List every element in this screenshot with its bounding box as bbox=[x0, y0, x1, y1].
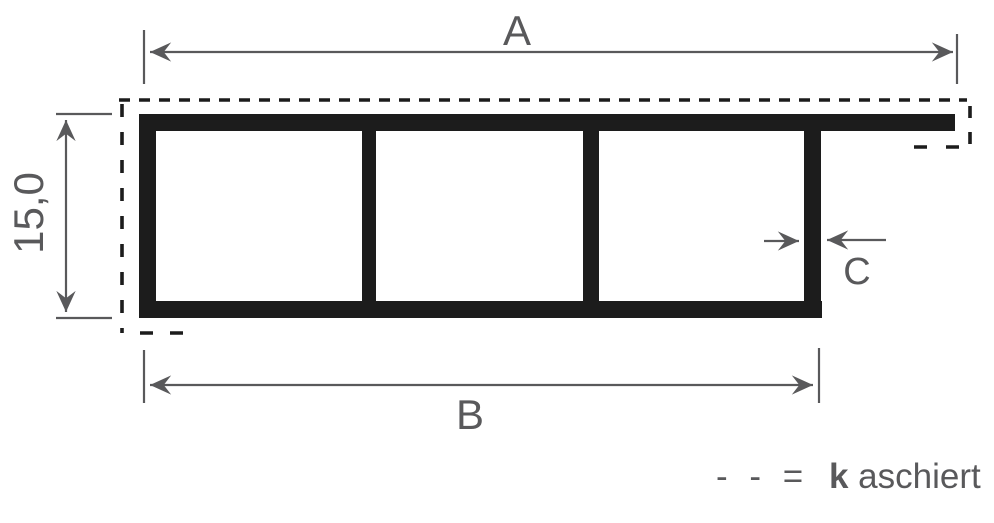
legend-term-rest: aschiert bbox=[858, 457, 981, 496]
profile-top-wall-flange bbox=[139, 114, 955, 131]
dim-b-label: B bbox=[456, 391, 484, 438]
dimension-lines bbox=[56, 30, 957, 403]
profile-drawing-canvas: A B C 15,0 - - = k aschiert bbox=[0, 0, 994, 523]
profile-inner-wall-2 bbox=[583, 131, 599, 301]
profile-cross-section-diagram: A B C 15,0 - - = k aschiert bbox=[0, 0, 994, 523]
dimension-labels: A B C 15,0 bbox=[5, 7, 871, 438]
profile-left-wall bbox=[139, 114, 156, 318]
legend-dash-symbol: - - = bbox=[716, 457, 809, 496]
profile-right-wall bbox=[804, 114, 821, 318]
profile-bottom-wall bbox=[139, 301, 822, 318]
dim-height-label: 15,0 bbox=[5, 172, 52, 254]
legend: - - = k aschiert bbox=[716, 457, 981, 496]
kaschiert-dashed-outline bbox=[119, 100, 970, 333]
profile-inner-wall-1 bbox=[362, 131, 376, 301]
profile-body bbox=[139, 114, 955, 318]
dim-c-label: C bbox=[843, 251, 870, 293]
dim-a-label: A bbox=[503, 7, 531, 54]
legend-term-bold-initial: k bbox=[829, 457, 849, 496]
